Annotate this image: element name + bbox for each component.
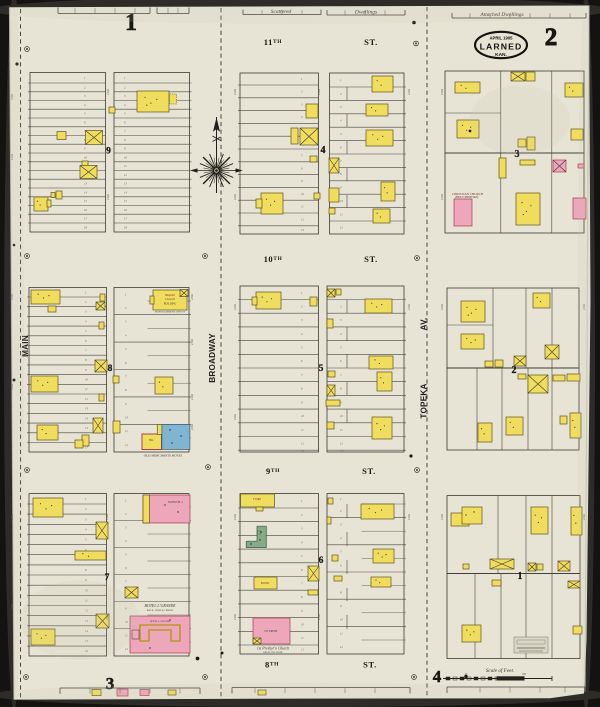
svg-text:2102: 2102 xyxy=(317,89,321,96)
svg-text:2102: 2102 xyxy=(407,89,411,96)
svg-text:1ST PRESB.: 1ST PRESB. xyxy=(264,630,278,633)
svg-text:2102: 2102 xyxy=(440,514,444,521)
svg-text:2102: 2102 xyxy=(190,394,194,401)
svg-text:APRIL 1905: APRIL 1905 xyxy=(490,36,514,41)
svg-text:2102: 2102 xyxy=(440,304,444,311)
svg-text:10: 10 xyxy=(301,623,305,627)
svg-text:13: 13 xyxy=(340,449,344,453)
svg-text:TOPEKA: TOPEKA xyxy=(420,383,429,418)
svg-text:4: 4 xyxy=(321,145,326,156)
svg-text:2102: 2102 xyxy=(106,194,110,201)
svg-text:18: 18 xyxy=(84,226,88,230)
svg-text:7: 7 xyxy=(105,573,110,583)
svg-text:12: 12 xyxy=(85,397,89,401)
svg-text:10: 10 xyxy=(340,414,344,418)
svg-text:12: 12 xyxy=(124,173,128,177)
svg-text:2102: 2102 xyxy=(317,614,321,621)
svg-text:Church: Church xyxy=(165,297,175,301)
svg-text:2102: 2102 xyxy=(106,89,110,96)
svg-text:8: 8 xyxy=(108,364,113,374)
svg-text:Scale of Feet.: Scale of Feet. xyxy=(486,667,514,674)
svg-text:13: 13 xyxy=(301,449,305,453)
svg-text:10: 10 xyxy=(124,156,128,160)
svg-text:12: 12 xyxy=(340,226,344,230)
svg-text:12: 12 xyxy=(125,443,129,447)
svg-text:2102: 2102 xyxy=(233,89,237,96)
svg-text:LARNED: LARNED xyxy=(480,42,523,52)
svg-text:2102: 2102 xyxy=(190,424,194,431)
svg-text:(FIRST CHRISTIAN): (FIRST CHRISTIAN) xyxy=(455,196,478,199)
svg-text:15: 15 xyxy=(85,426,89,430)
svg-text:13: 13 xyxy=(124,182,128,186)
svg-text:9: 9 xyxy=(106,147,111,157)
svg-text:2102: 2102 xyxy=(407,304,411,311)
svg-text:ST.: ST. xyxy=(363,660,377,670)
svg-text:AV.: AV. xyxy=(420,318,429,331)
svg-text:10: 10 xyxy=(84,156,88,160)
svg-text:1st Presbyt’n Church: 1st Presbyt’n Church xyxy=(257,647,289,651)
svg-text:12: 12 xyxy=(125,647,129,651)
svg-text:KAN.: KAN. xyxy=(495,52,507,58)
svg-text:10: 10 xyxy=(85,378,89,382)
svg-text:15: 15 xyxy=(124,199,128,203)
svg-text:10: 10 xyxy=(301,414,305,418)
svg-text:2102: 2102 xyxy=(407,514,411,521)
svg-text:14: 14 xyxy=(84,191,88,195)
svg-text:4: 4 xyxy=(433,667,442,686)
svg-text:2102: 2102 xyxy=(233,304,237,311)
svg-text:13: 13 xyxy=(85,407,89,411)
svg-text:2102: 2102 xyxy=(233,194,237,201)
svg-text:HO.: HO. xyxy=(149,439,154,442)
svg-text:17: 17 xyxy=(84,217,88,221)
svg-text:ST.: ST. xyxy=(364,37,378,47)
svg-text:13: 13 xyxy=(301,228,305,232)
svg-text:1: 1 xyxy=(518,571,523,582)
svg-text:2102: 2102 xyxy=(233,514,237,521)
svg-text:2102: 2102 xyxy=(233,614,237,621)
svg-text:10: 10 xyxy=(301,192,305,196)
svg-text:5: 5 xyxy=(319,364,324,374)
svg-text:BRICK AND STONE: BRICK AND STONE xyxy=(263,651,283,654)
svg-text:14: 14 xyxy=(124,191,128,195)
svg-text:OLD MERCHANTS HOTEL: OLD MERCHANTS HOTEL xyxy=(144,454,183,458)
svg-text:12: 12 xyxy=(301,648,305,652)
svg-text:2: 2 xyxy=(545,24,558,51)
svg-text:10: 10 xyxy=(340,618,344,622)
svg-text:2102: 2102 xyxy=(440,89,444,96)
svg-text:STORE: STORE xyxy=(253,498,262,501)
svg-text:BUILDING: BUILDING xyxy=(164,303,177,306)
svg-text:2102: 2102 xyxy=(440,194,444,201)
svg-text:2102: 2102 xyxy=(233,414,237,421)
svg-text:16: 16 xyxy=(124,208,128,212)
svg-text:13: 13 xyxy=(84,182,88,186)
svg-text:BAND: BAND xyxy=(261,581,270,585)
svg-text:12: 12 xyxy=(301,218,305,222)
svg-text:12: 12 xyxy=(340,645,344,649)
svg-text:10: 10 xyxy=(125,416,129,420)
svg-text:BROADWAY: BROADWAY xyxy=(208,333,217,383)
svg-text:17: 17 xyxy=(124,217,128,221)
svg-text:HOTEL L’GRANDE: HOTEL L’GRANDE xyxy=(143,604,176,608)
svg-text:6: 6 xyxy=(319,556,324,566)
svg-text:2102: 2102 xyxy=(105,514,109,521)
svg-text:2102: 2102 xyxy=(190,339,194,346)
svg-text:12: 12 xyxy=(340,442,344,446)
svg-text:ST.: ST. xyxy=(362,466,376,476)
svg-text:12: 12 xyxy=(301,442,305,446)
svg-text:ST.: ST. xyxy=(364,254,378,264)
svg-text:16: 16 xyxy=(84,208,88,212)
svg-text:14: 14 xyxy=(85,416,89,420)
svg-text:HOTEL L GRANDE: HOTEL L GRANDE xyxy=(150,620,171,623)
svg-text:FROM BASEMENT AND 1ST: FROM BASEMENT AND 1ST xyxy=(155,311,186,314)
svg-text:NO HOTEL 2: NO HOTEL 2 xyxy=(168,501,183,504)
svg-text:2102: 2102 xyxy=(190,294,194,301)
svg-text:10: 10 xyxy=(340,199,344,203)
svg-text:15: 15 xyxy=(84,199,88,203)
svg-text:2: 2 xyxy=(512,365,517,376)
svg-text:BRICK, STONE & CEMENT: BRICK, STONE & CEMENT xyxy=(147,610,174,612)
svg-text:18: 18 xyxy=(124,226,128,230)
